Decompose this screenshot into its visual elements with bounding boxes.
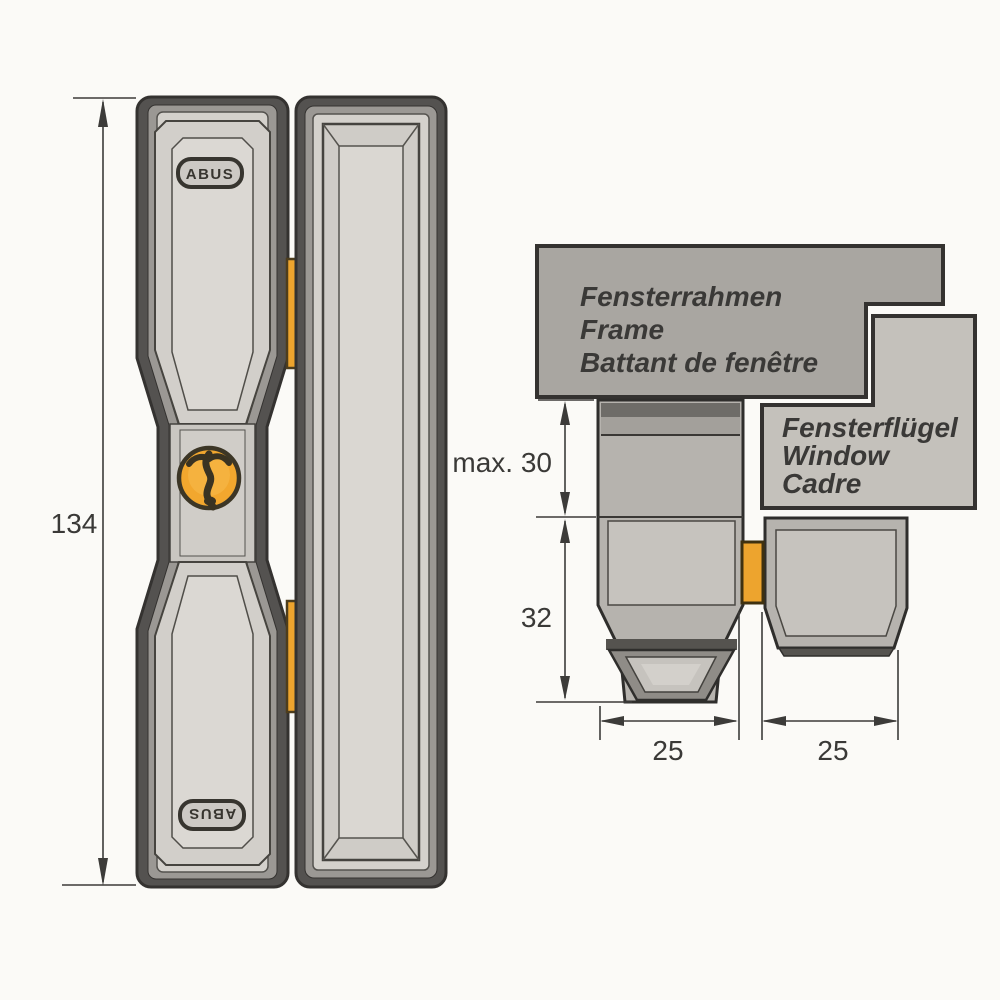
lock-section-shoulder xyxy=(606,639,737,650)
height-dimension: 134 xyxy=(51,98,136,886)
arrow-down-icon xyxy=(560,676,570,700)
arrow-up-icon xyxy=(560,401,570,425)
cross-section-view: Fensterrahmen Frame Battant de fenêtre F… xyxy=(452,246,975,766)
dimension-134-label: 134 xyxy=(51,508,98,539)
brand-plate-bottom: ABUS xyxy=(180,801,244,829)
brand-plate-top: ABUS xyxy=(178,159,242,187)
lock-section-panel xyxy=(608,521,735,605)
arrow-left-icon xyxy=(600,716,624,726)
lock-section-mid-band xyxy=(601,417,740,434)
bolt-section xyxy=(742,542,763,603)
strike-section xyxy=(765,518,907,656)
strike-section-panel xyxy=(776,530,896,636)
sash-label-fr: Cadre xyxy=(782,468,861,499)
keyhole xyxy=(179,448,239,508)
lock-body: ABUS ABUS xyxy=(137,97,288,887)
dimension-32-label: 32 xyxy=(521,602,552,633)
dimension-max30-label: max. 30 xyxy=(452,447,552,478)
brand-top-label: ABUS xyxy=(186,166,235,183)
depth-dimension: max. 30 xyxy=(452,400,596,517)
arrow-down-icon xyxy=(98,858,108,886)
dimension-25-right-label: 25 xyxy=(817,735,848,766)
frame-label-en: Frame xyxy=(580,314,664,345)
sash-label-de: Fensterflügel xyxy=(782,412,959,443)
strike-panel-face xyxy=(339,146,403,838)
front-view: 134 xyxy=(51,97,446,887)
lock-section-top-band xyxy=(601,403,740,417)
frame-label-fr: Battant de fenêtre xyxy=(580,347,818,378)
arrow-up-icon xyxy=(560,519,570,543)
technical-drawing: 134 xyxy=(0,0,1000,1000)
strike-plate xyxy=(296,97,446,887)
arrow-down-icon xyxy=(560,492,570,516)
arrow-left-icon xyxy=(762,716,786,726)
frame-label-de: Fensterrahmen xyxy=(580,281,782,312)
arrow-right-icon xyxy=(874,716,898,726)
drawing-canvas: 134 xyxy=(0,0,1000,1000)
arrow-right-icon xyxy=(714,716,738,726)
sash-label-en: Window xyxy=(782,440,891,471)
keyhole-base xyxy=(204,497,216,506)
strike-section-lip xyxy=(779,648,894,656)
brand-bottom-label: ABUS xyxy=(188,805,237,822)
lock-section xyxy=(598,400,743,702)
dimension-25-left-label: 25 xyxy=(652,735,683,766)
arrow-up-icon xyxy=(98,99,108,127)
